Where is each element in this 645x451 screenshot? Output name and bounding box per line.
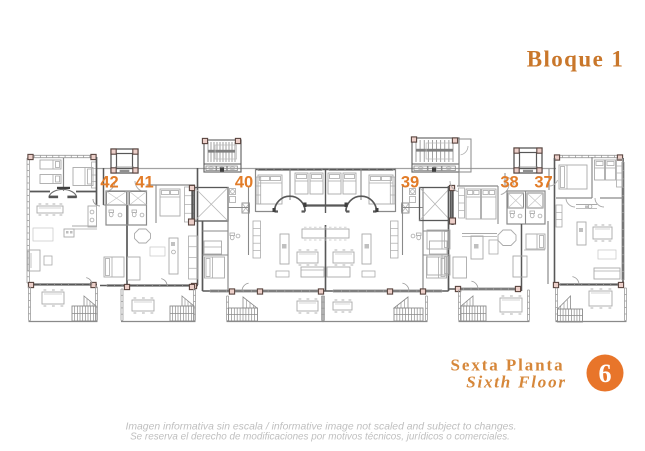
svg-text:Bloque 1: Bloque 1 (527, 47, 624, 72)
svg-text:37: 37 (534, 174, 552, 192)
svg-text:39: 39 (401, 174, 419, 192)
svg-text:6: 6 (599, 359, 612, 388)
svg-text:42: 42 (100, 174, 118, 192)
svg-text:Se reserva el derecho de modif: Se reserva el derecho de modificaciones … (130, 432, 510, 443)
svg-text:38: 38 (500, 174, 518, 192)
svg-text:41: 41 (135, 174, 153, 192)
svg-text:40: 40 (235, 174, 253, 192)
svg-text:Sixth Floor: Sixth Floor (466, 373, 567, 392)
